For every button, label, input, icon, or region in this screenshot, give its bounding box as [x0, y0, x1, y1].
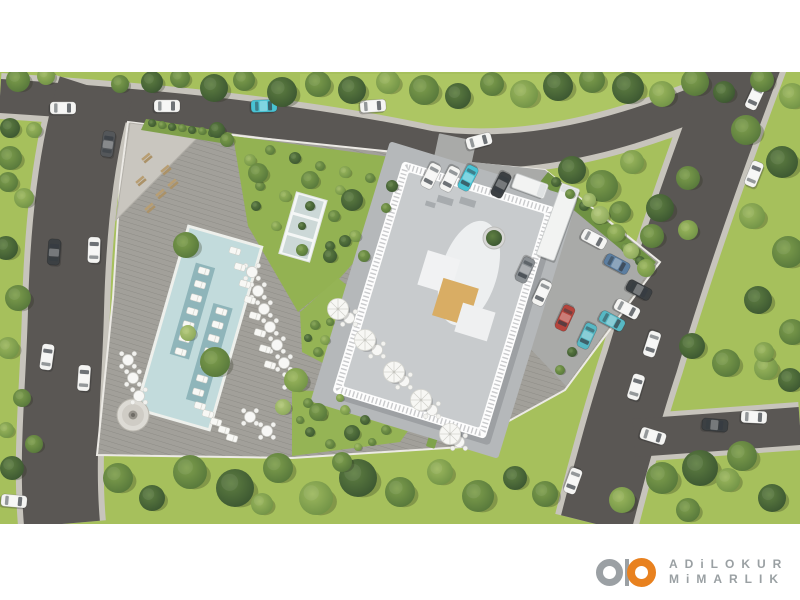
car [47, 239, 63, 267]
car [739, 410, 767, 425]
logo-text: ADiLOKUR MiMARLIK [669, 557, 788, 587]
company-logo: ADiLOKUR MiMARLIK [596, 555, 788, 589]
road [60, 88, 96, 524]
logo-line-2: MiMARLIK [669, 572, 788, 587]
car [49, 102, 77, 116]
site-plan-rendering [0, 0, 800, 600]
logo-line-1: ADiLOKUR [669, 557, 788, 572]
car [77, 365, 93, 393]
logo-ring-o-icon [627, 558, 656, 587]
architectural-site-plan-page: ADiLOKUR MiMARLIK [0, 0, 800, 600]
car [0, 494, 27, 510]
tree-planter [483, 227, 505, 249]
car [153, 100, 181, 114]
logo-ring-a-icon [596, 559, 623, 586]
car [700, 418, 729, 434]
logo-mark [596, 555, 656, 589]
render-area [0, 54, 800, 524]
car [87, 237, 102, 265]
